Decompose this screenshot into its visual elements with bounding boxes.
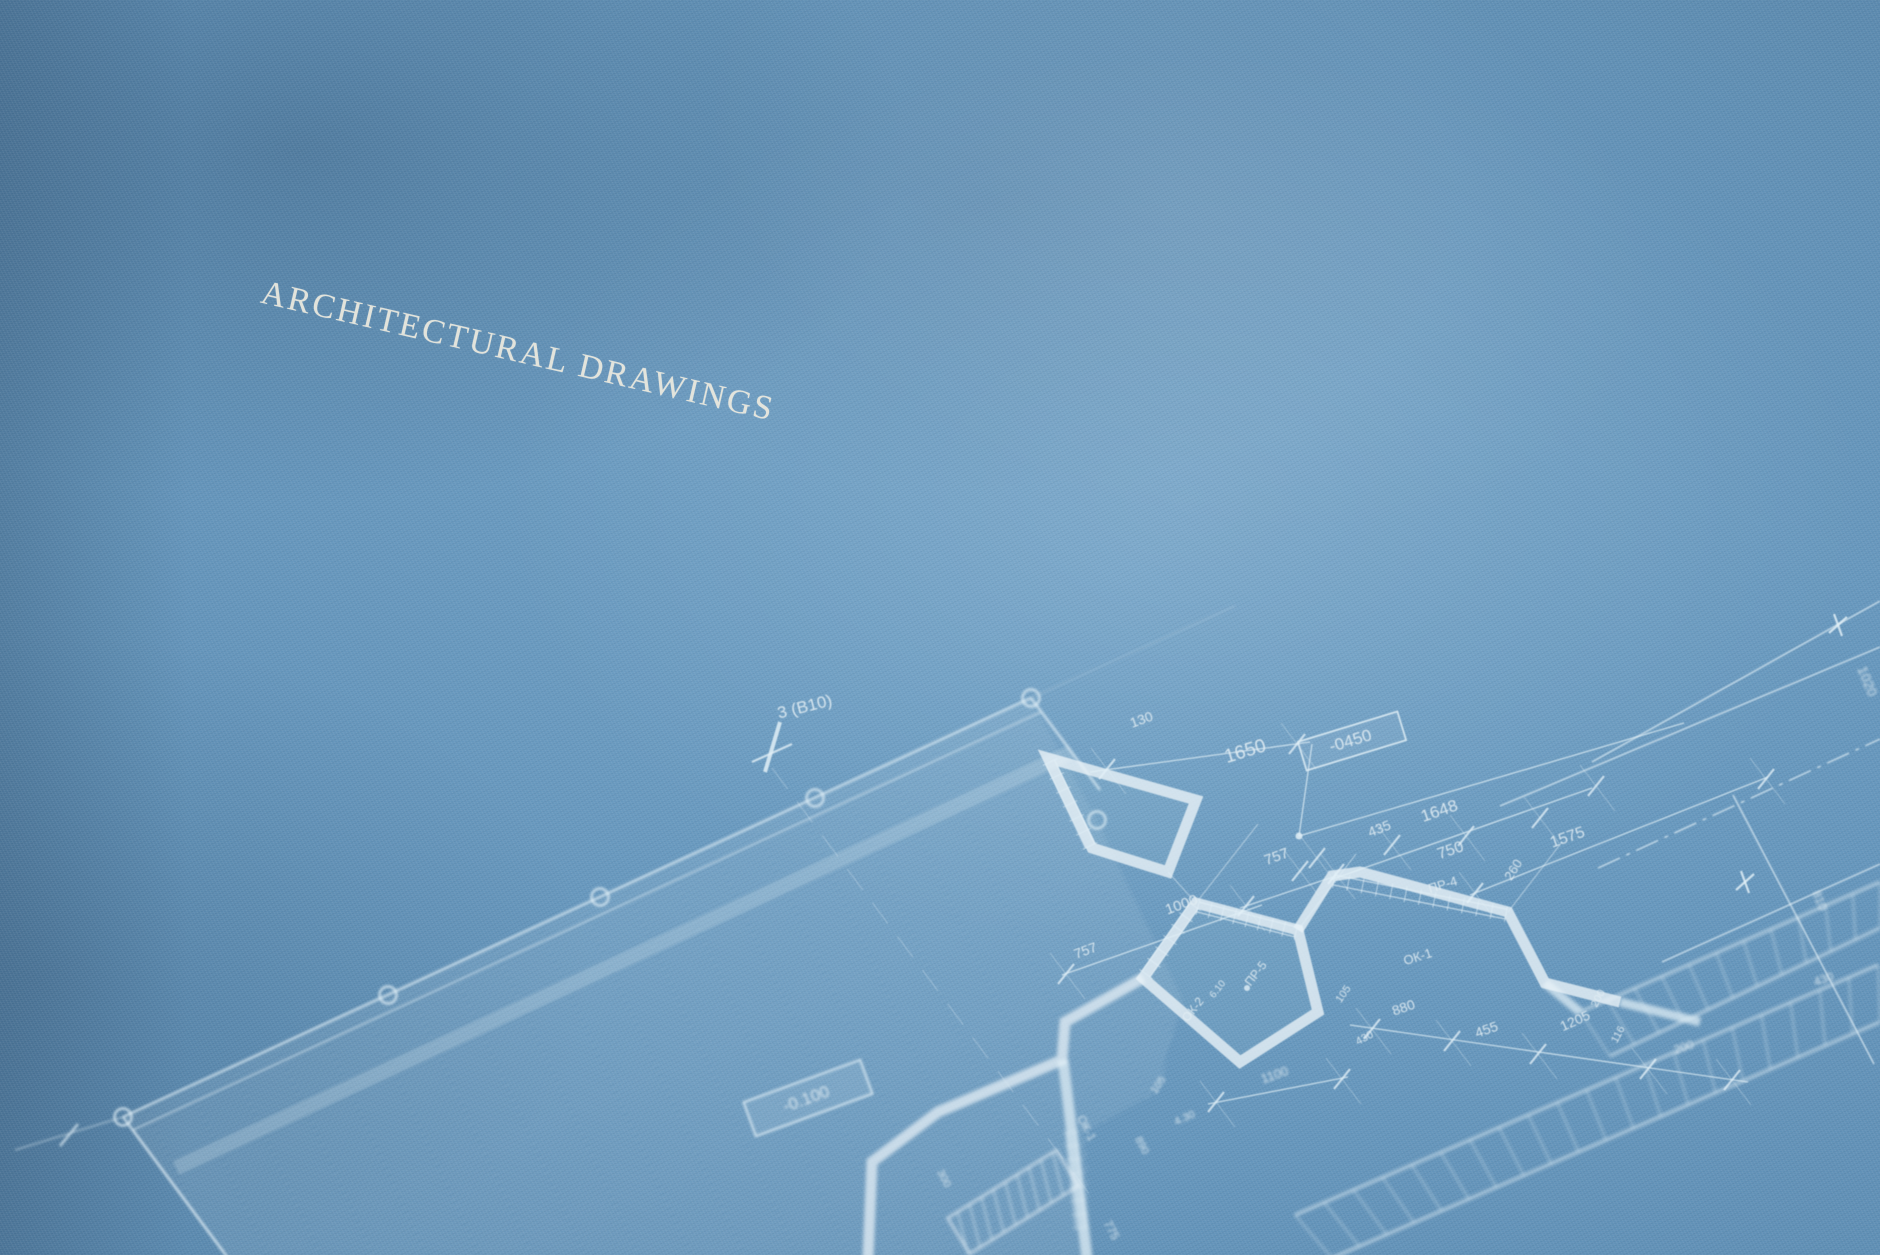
blueprint-photo: { "title": { "text": "ARCHITECTURAL DRAW…: [0, 0, 1880, 1255]
photo-vignette: [0, 0, 1880, 1255]
